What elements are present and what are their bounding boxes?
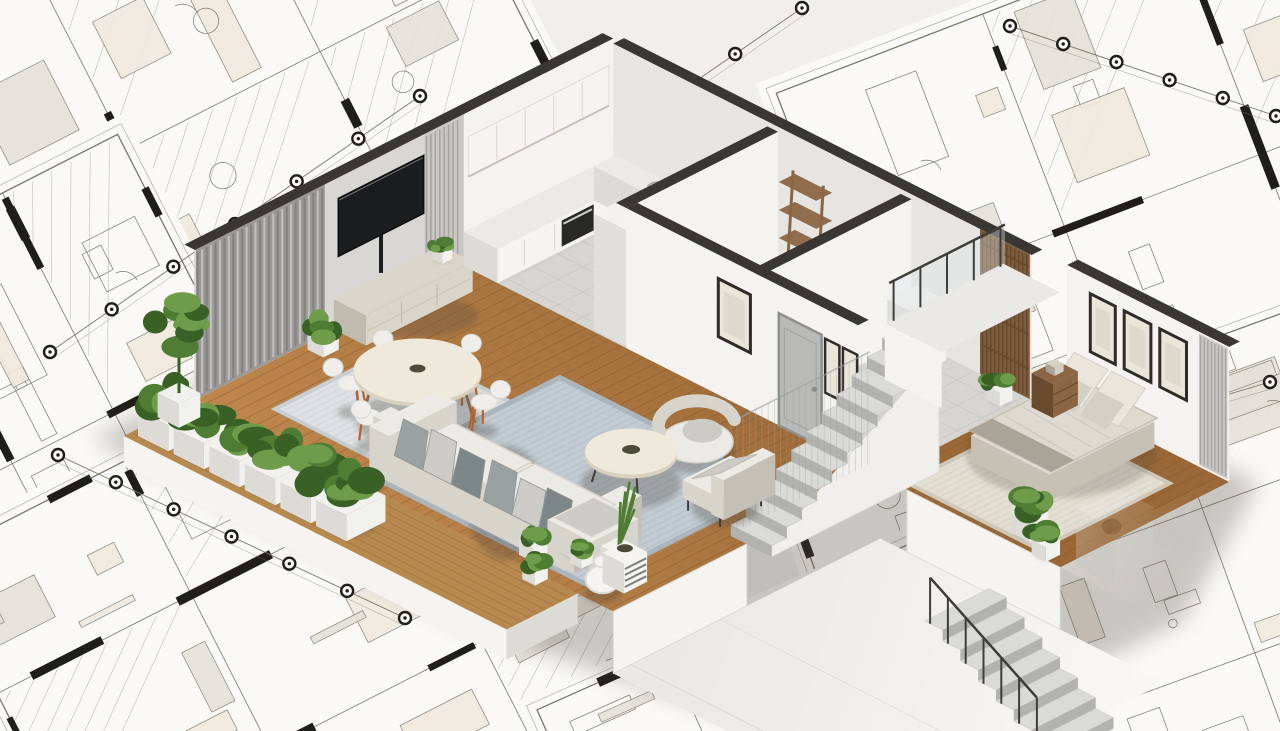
frame-art — [1130, 324, 1146, 370]
v2-top — [617, 544, 633, 552]
leaves — [1000, 373, 1015, 384]
shrub — [298, 466, 329, 491]
door-handle — [812, 387, 817, 392]
bedroom-curtain — [1199, 334, 1228, 479]
leaves — [436, 237, 454, 247]
far-washer — [1076, 488, 1153, 585]
picture-frame-a — [825, 339, 839, 400]
refrigerator-body-side — [594, 214, 626, 346]
floorplan-render-stage — [0, 0, 1280, 731]
ct-bowl — [622, 445, 640, 454]
a1-cushion — [682, 419, 722, 443]
centerpiece-bowl — [410, 365, 426, 373]
leaves — [311, 329, 336, 345]
far-washer-door — [1102, 519, 1122, 535]
a2-back-side — [711, 474, 724, 520]
tall-leaves — [164, 292, 201, 313]
leaves — [1013, 489, 1041, 504]
shrub — [298, 444, 332, 463]
shrub — [348, 467, 385, 494]
leaves — [570, 542, 589, 551]
leaves — [1035, 525, 1060, 540]
chair-back — [490, 381, 510, 399]
isometric-apartment-render — [0, 0, 1280, 731]
frame-art — [1165, 342, 1181, 388]
chair-back — [323, 358, 343, 376]
chair-back — [351, 400, 371, 418]
leaves — [431, 245, 441, 253]
frame-art — [1096, 306, 1110, 351]
leaves — [526, 527, 547, 542]
leaves — [525, 554, 541, 565]
